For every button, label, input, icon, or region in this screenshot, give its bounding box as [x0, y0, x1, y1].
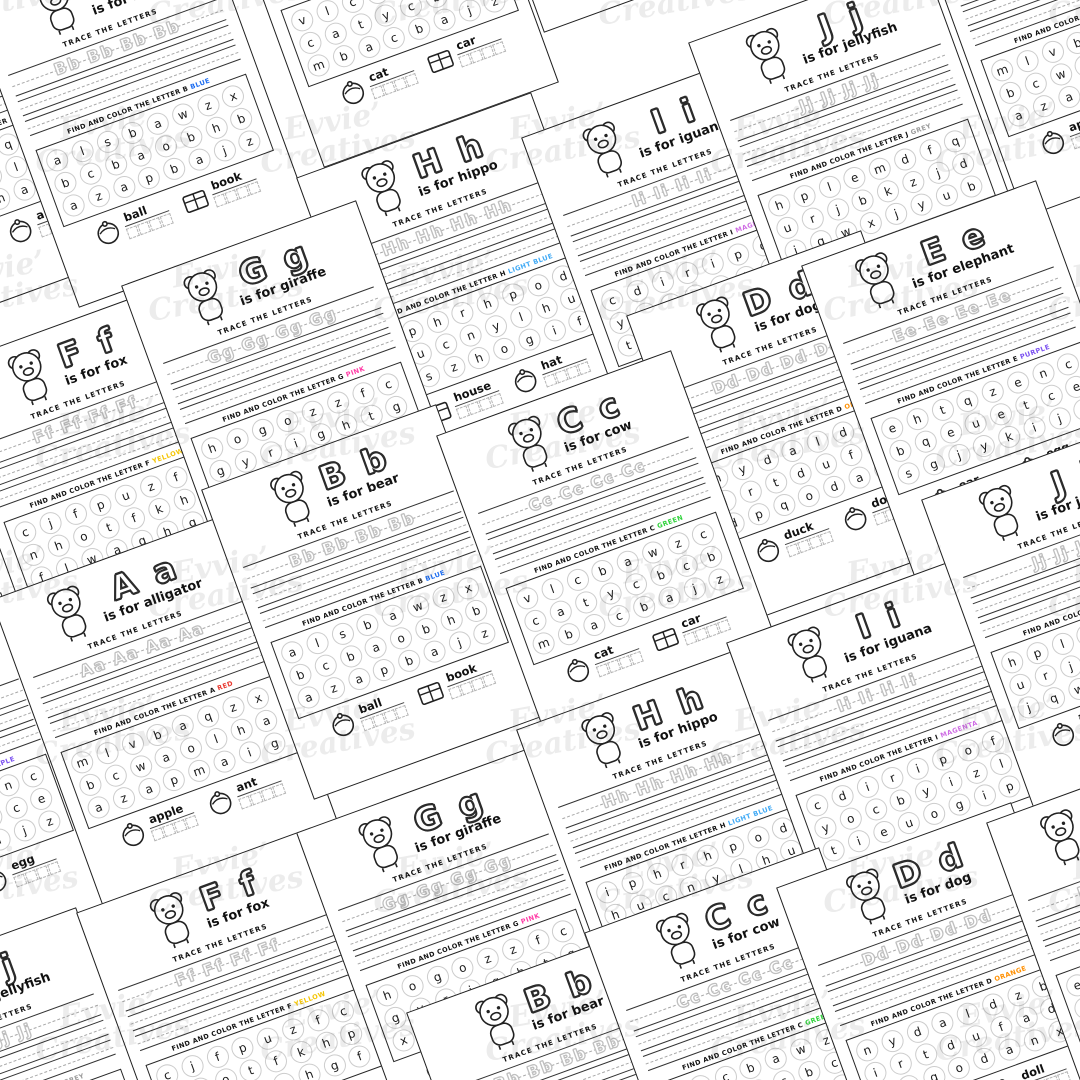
grid-letter: e: [27, 785, 55, 813]
grid-letter: b: [286, 661, 314, 689]
grid-letter: o: [177, 734, 205, 762]
grid-letter: h: [312, 1029, 340, 1057]
grid-letter: m: [185, 757, 213, 785]
grid-letter: q: [954, 387, 982, 415]
grid-letter: p: [996, 772, 1024, 800]
book-icon: [177, 182, 213, 218]
animal-icon: [261, 464, 324, 534]
grid-letter: q: [1040, 684, 1068, 712]
grid-letter: j: [824, 196, 852, 224]
grid-letter: x: [454, 574, 482, 602]
grid-letter: f: [262, 1047, 290, 1075]
grid-letter: r: [1031, 662, 1059, 690]
grid-letter: l: [202, 725, 230, 753]
grid-letter: y: [372, 1, 400, 29]
grid-letter: e: [937, 419, 965, 447]
grid-letter: r: [886, 1050, 914, 1078]
animal-icon: [837, 862, 900, 932]
grid-letter: j: [1015, 693, 1043, 721]
grid-letter: o: [223, 425, 251, 453]
grid-letter: b: [144, 721, 172, 749]
grid-letter: f: [304, 1006, 332, 1034]
grid-letter: a: [85, 793, 113, 821]
grid-letter: z: [236, 127, 264, 155]
grid-letter: o: [945, 1054, 973, 1080]
grid-letter: j: [1045, 404, 1073, 432]
grid-letter: c: [563, 566, 591, 594]
animal-icon: [141, 885, 204, 955]
grid-letter: p: [790, 182, 818, 210]
grid-letter: h: [694, 842, 722, 870]
grid-letter: k: [287, 1038, 315, 1066]
grid-letter: z: [219, 693, 247, 721]
grid-letter: a: [110, 173, 138, 201]
grid-letter: d: [891, 146, 919, 174]
grid-letter: d: [970, 1045, 998, 1073]
grid-letter: p: [87, 491, 115, 519]
grid-letter: i: [593, 878, 621, 906]
cow-icon: [499, 409, 562, 479]
grid-letter: a: [144, 110, 172, 138]
grid-letter: b: [51, 169, 79, 197]
grid-letter: n: [0, 771, 22, 799]
grid-letter: u: [812, 450, 840, 478]
grid-letter: i: [937, 768, 965, 796]
grid-letter: f: [979, 727, 1007, 755]
grid-letter: z: [706, 565, 734, 593]
grid-letter: i: [0, 826, 13, 854]
grid-letter: h: [295, 1061, 323, 1080]
grid-letter: a: [580, 611, 608, 639]
grid-letter: a: [152, 743, 180, 771]
grid-letter: d: [937, 1031, 965, 1059]
grid-letter: a: [135, 775, 163, 803]
grid-letter: w: [639, 539, 667, 567]
grid-letter: m: [68, 748, 96, 776]
grid-letter: w: [787, 1036, 815, 1064]
animal-icon: [0, 342, 62, 412]
grid-letter: v: [1038, 38, 1066, 66]
grid-letter: i: [1020, 414, 1048, 442]
animal-icon: [847, 245, 910, 315]
grid-letter: a: [1072, 51, 1080, 79]
grid-letter: b: [555, 620, 583, 648]
grid-letter: m: [305, 51, 333, 79]
grid-letter: r: [449, 299, 477, 327]
grid-letter: e: [1074, 621, 1080, 649]
animal-icon: [499, 409, 562, 479]
grid-letter: o: [920, 800, 948, 828]
grid-letter: g: [248, 416, 276, 444]
grid-letter: x: [244, 684, 272, 712]
grid-letter: k: [995, 423, 1023, 451]
grid-letter: y: [728, 455, 756, 483]
grid-letter: a: [1012, 1004, 1040, 1032]
grid-letter: b: [102, 151, 130, 179]
grid-letter: c: [2, 794, 30, 822]
iguana-icon: [779, 620, 842, 690]
grid-letter: c: [711, 1063, 739, 1080]
grid-letter: l: [68, 137, 96, 165]
grid-letter: o: [954, 736, 982, 764]
grid-letter: d: [828, 782, 856, 810]
grid-letter: b: [958, 172, 986, 200]
grid-letter: j: [945, 441, 973, 469]
car-icon: [647, 620, 683, 656]
grid-letter: c: [153, 1061, 181, 1080]
jellyfish-icon: [737, 21, 800, 91]
grid-letter: c: [329, 997, 357, 1025]
animal-icon: [38, 579, 101, 649]
grid-letter: p: [745, 500, 773, 528]
grid-letter: v: [118, 730, 146, 758]
grid-letter: a: [60, 191, 88, 219]
grid-letter: b: [354, 611, 382, 639]
grid-letter: l: [804, 428, 832, 456]
grid-letter: n: [1020, 1026, 1048, 1054]
grid-letter: j: [882, 200, 910, 228]
grid-letter: w: [169, 101, 197, 129]
grid-letter: p: [229, 1034, 257, 1062]
grid-letter: p: [719, 833, 747, 861]
grid-letter: r: [879, 764, 907, 792]
grid-letter: a: [845, 464, 873, 492]
grid-letter: l: [987, 750, 1015, 778]
grid-letter: g: [515, 326, 543, 354]
grid-letter: i: [845, 827, 873, 855]
grid-letter: s: [93, 128, 121, 156]
grid-letter: b: [1064, 29, 1080, 57]
animal-icon: [970, 478, 1033, 548]
grid-letter: b: [227, 105, 255, 133]
bear-icon: [466, 987, 529, 1057]
grid-letter: u: [254, 1025, 282, 1053]
grid-letter: i: [861, 1059, 889, 1080]
grid-letter: j: [445, 628, 473, 656]
grid-letter: e: [987, 400, 1015, 428]
grid-letter: b: [177, 123, 205, 151]
grid-letter: g: [920, 450, 948, 478]
grid-letter: p: [618, 869, 646, 897]
grid-letter: u: [962, 409, 990, 437]
animal-icon: [687, 290, 750, 360]
grid-letter: b: [160, 155, 188, 183]
grid-letter: b: [886, 437, 914, 465]
grid-letter: b: [996, 79, 1024, 107]
grid-letter: z: [137, 473, 165, 501]
grid-letter: j: [210, 136, 238, 164]
grid-letter: y: [811, 814, 839, 842]
grid-letter: y: [878, 1027, 906, 1055]
grid-letter: v: [288, 6, 316, 34]
ant-icon: [202, 784, 238, 820]
grid-letter: f: [349, 379, 377, 407]
giraffe-icon: [349, 809, 412, 879]
grid-letter: z: [429, 583, 457, 611]
grid-letter: a: [355, 33, 383, 61]
grid-letter: t: [928, 396, 956, 424]
grid-letter: w: [127, 753, 155, 781]
grid-letter: m: [0, 185, 13, 213]
grid-letter: a: [185, 146, 213, 174]
grid-letter: n: [19, 541, 47, 569]
grid-letter: h: [998, 648, 1026, 676]
grid-letter: o: [274, 407, 302, 435]
grid-letter: c: [862, 796, 890, 824]
grid-letter: e: [878, 414, 906, 442]
grid-letter: c: [803, 791, 831, 819]
grid-letter: c: [1054, 350, 1080, 378]
grid-letter: z: [664, 529, 692, 557]
grid-letter: f: [61, 500, 89, 528]
apple-icon: [115, 816, 151, 852]
grid-letter: f: [203, 1043, 231, 1071]
grid-letter: j: [455, 0, 483, 25]
big-trace-letters: J j: [1047, 455, 1080, 501]
grid-letter: p: [499, 281, 527, 309]
grid-letter: h: [227, 716, 255, 744]
grid-letter: y: [912, 777, 940, 805]
grid-letter: u: [112, 482, 140, 510]
grid-letter: m: [988, 56, 1016, 84]
grid-letter: l: [815, 173, 843, 201]
hippo-icon: [573, 705, 636, 775]
grid-letter: e: [1062, 373, 1080, 401]
grid-letter: z: [471, 619, 499, 647]
grid-letter: d: [820, 473, 848, 501]
grid-letter: b: [337, 643, 365, 671]
grid-letter: c: [622, 570, 650, 598]
grid-letter: a: [546, 598, 574, 626]
grid-letter: l: [507, 303, 535, 331]
grid-letter: o: [795, 482, 823, 510]
grid-letter: c: [11, 518, 39, 546]
book-icon: [412, 674, 448, 710]
grid-letter: c: [432, 331, 460, 359]
grid-letter: e: [841, 164, 869, 192]
cow-icon: [647, 906, 710, 976]
grid-letter: d: [829, 419, 857, 447]
grid-letter: c: [101, 762, 129, 790]
grid-letter: b: [737, 1054, 765, 1080]
grid-letter: a: [278, 638, 306, 666]
cat-icon: [335, 74, 371, 110]
grid-letter: j: [680, 574, 708, 602]
grid-letter: z: [85, 182, 113, 210]
grid-letter: a: [210, 748, 238, 776]
grid-letter: c: [689, 520, 717, 548]
grid-letter: z: [899, 168, 927, 196]
fox-icon: [0, 342, 62, 412]
grid-letter: z: [299, 398, 327, 426]
grid-letter: b: [405, 15, 433, 43]
duck-icon: [750, 532, 786, 568]
grid-letter: q: [911, 428, 939, 456]
grid-letter: j: [178, 1052, 206, 1080]
apple-icon: [1035, 124, 1071, 160]
grid-letter: h: [202, 114, 230, 142]
grid-letter: i: [904, 755, 932, 783]
grid-letter: q: [941, 127, 969, 155]
grid-letter: u: [895, 809, 923, 837]
grid-letter: d: [623, 277, 651, 305]
grid-letter: b: [589, 557, 617, 585]
grid-letter: l: [686, 1072, 714, 1080]
grid-letter: h: [437, 606, 465, 634]
grid-letter: a: [362, 633, 390, 661]
grid-letter: f: [987, 1013, 1015, 1041]
grid-letter: c: [296, 29, 324, 57]
grid-letter: m: [530, 629, 558, 657]
car-icon: [422, 42, 458, 78]
grid-letter: i: [648, 268, 676, 296]
animal-icon: [779, 620, 842, 690]
grid-letter: a: [252, 707, 280, 735]
grid-letter: a: [321, 20, 349, 48]
grid-letter: b: [395, 647, 423, 675]
grid-letter: f: [524, 926, 552, 954]
grid-letter: a: [430, 6, 458, 34]
grid-letter: s: [328, 620, 356, 648]
grid-letter: f: [346, 1042, 374, 1070]
grid-letter: r: [736, 478, 764, 506]
grid-letter: c: [549, 917, 577, 945]
grid-letter: h: [465, 344, 493, 372]
grid-letter: k: [145, 495, 173, 523]
grid-letter: o: [490, 335, 518, 363]
grid-letter: p: [135, 164, 163, 192]
cat-icon: [560, 652, 596, 688]
grid-letter: h: [903, 405, 931, 433]
grid-letter: f: [120, 504, 148, 532]
grid-letter: h: [474, 290, 502, 318]
grid-letter: d: [753, 446, 781, 474]
grid-letter: o: [152, 132, 180, 160]
dog-icon: [687, 290, 750, 360]
grid-letter: o: [836, 805, 864, 833]
grid-letter: r: [674, 259, 702, 287]
grid-letter: z: [979, 378, 1007, 406]
animal-icon: [174, 262, 237, 332]
grid-letter: g: [423, 963, 451, 991]
grid-letter: o: [70, 523, 98, 551]
grid-letter: o: [744, 823, 772, 851]
grid-letter: a: [762, 1045, 790, 1073]
grid-letter: o: [524, 271, 552, 299]
grid-letter: c: [19, 762, 47, 790]
grid-letter: c: [76, 160, 104, 188]
grid-letter: b: [647, 561, 675, 589]
grid-letter: b: [76, 771, 104, 799]
grid-letter: a: [345, 665, 373, 693]
grid-letter: c: [311, 652, 339, 680]
grid-letter: o: [398, 972, 426, 1000]
grid-letter: m: [866, 155, 894, 183]
grid-letter: n: [457, 321, 485, 349]
giraffe-icon: [174, 262, 237, 332]
grid-letter: z: [1004, 981, 1032, 1009]
grid-letter: u: [932, 181, 960, 209]
grid-letter: z: [499, 936, 527, 964]
grid-letter: n: [1029, 359, 1057, 387]
grid-letter: i: [699, 250, 727, 278]
grid-letter: z: [1030, 92, 1058, 120]
grid-letter: b: [630, 593, 658, 621]
grid-letter: g: [945, 791, 973, 819]
grid-letter: b: [119, 119, 147, 147]
grid-letter: l: [538, 575, 566, 603]
grid-letter: q: [194, 703, 222, 731]
grid-letter: z: [110, 784, 138, 812]
grid-letter: c: [1037, 382, 1065, 410]
grid-letter: w: [1065, 675, 1080, 703]
animal-icon: [1032, 802, 1080, 872]
grid-letter: t: [237, 1056, 265, 1080]
grid-letter: h: [532, 294, 560, 322]
grid-letter: o: [449, 954, 477, 982]
grid-letter: f: [916, 136, 944, 164]
grid-letter: d: [979, 991, 1007, 1019]
animal-icon: [573, 705, 636, 775]
grid-letter: b: [1071, 994, 1080, 1022]
grid-letter: z: [481, 0, 509, 16]
grid-letter: g: [381, 1004, 409, 1032]
grid-letter: l: [303, 629, 331, 657]
ball-icon: [90, 214, 126, 250]
grid-letter: p: [160, 766, 188, 794]
grid-letter: a: [1005, 101, 1033, 129]
grid-letter: i: [540, 316, 568, 344]
grid-letter: c: [521, 607, 549, 635]
grid-letter: b: [697, 543, 725, 571]
grid-letter: c: [380, 24, 408, 52]
grid-letter: g: [261, 729, 289, 757]
grid-letter: b: [330, 42, 358, 70]
grid-letter: i: [853, 773, 881, 801]
grid-letter: w: [1047, 61, 1075, 89]
grid-letter: l: [1048, 630, 1076, 658]
grid-letter: c: [598, 286, 626, 314]
grid-letter: l: [93, 739, 121, 767]
grid-letter: u: [773, 214, 801, 242]
jellyfish-icon: [970, 478, 1033, 548]
grid-letter: p: [337, 1020, 365, 1048]
grid-letter: a: [1055, 83, 1080, 111]
animal-icon: [353, 153, 416, 223]
grid-letter: z: [962, 759, 990, 787]
grid-letter: b: [795, 1058, 823, 1080]
grid-letter: z: [279, 1016, 307, 1044]
grid-letter: h: [423, 308, 451, 336]
grid-letter: p: [1023, 639, 1051, 667]
fox-icon: [141, 885, 204, 955]
ball-icon: [325, 706, 361, 742]
grid-letter: h: [44, 532, 72, 560]
grid-letter: f: [837, 441, 865, 469]
grid-letter: p: [724, 241, 752, 269]
grid-letter: j: [1057, 653, 1080, 681]
grid-letter: t: [762, 469, 790, 497]
grid-letter: h: [643, 860, 671, 888]
grid-letter: z: [324, 389, 352, 417]
grid-letter: s: [895, 459, 923, 487]
grid-letter: x: [219, 82, 247, 110]
grid-letter: d: [903, 1018, 931, 1046]
grid-letter: a: [614, 548, 642, 576]
doll-icon: [837, 500, 873, 536]
animal-icon: [647, 906, 710, 976]
grid-letter: t: [1012, 391, 1040, 419]
